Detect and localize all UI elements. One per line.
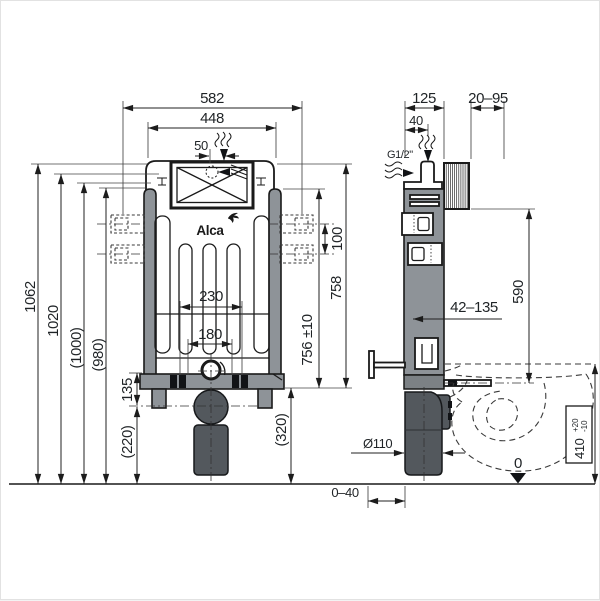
side-dimensions: 125 20–95 40 G1/2" 590 42–135 Ø110 410 +… [331,90,595,508]
water-waves-icon [215,132,231,147]
wc-frame-dimension-diagram: Alca [1,1,600,601]
foot-right [258,389,272,408]
dim-bracket-height: 590 [510,280,527,304]
water-inlet-arrow-icon [403,169,414,177]
dim-drain-diameter: Ø110 [363,436,392,451]
dim-bowl-tol-minus: -10 [580,420,589,432]
floor-level-label: 0 [514,455,522,472]
inlet-thread-label: G1/2" [387,149,413,161]
foot-left [152,389,166,408]
dim-overall-width: 582 [200,90,224,107]
service-box-upper [402,213,433,235]
dim-frame-depth: 125 [412,90,436,107]
anchor-rod [374,363,405,368]
dim-height-4: (980) [90,338,107,371]
technical-drawing-page: Alca [0,0,600,600]
dim-panel-height: 756 ±10 [299,314,316,365]
dim-bowl-tol-plus: +20 [571,418,580,432]
water-waves-icon [419,135,435,149]
frame-post-left [144,189,156,376]
dim-frame-height: 758 [328,276,345,300]
service-box-lower [408,243,442,265]
floor-level-marker-icon [510,473,526,484]
dim-outlet-center: (220) [119,425,136,458]
dim-bolt-spacing: 230 [199,288,223,305]
dim-base-to-outlet: 135 [119,378,136,402]
cistern-side-top [404,162,442,190]
dim-inner-spacing: 180 [198,326,222,343]
flush-opening [171,162,253,208]
drain-elbow-side [405,392,442,475]
grate-slot [410,195,439,199]
dim-outlet-side: (320) [273,413,290,446]
wall-bracket-options-left [97,215,147,263]
flush-bend-housing [415,338,438,369]
dim-wall-distance: 42–135 [450,299,498,316]
dim-bowl-height-box: 410 +20 -10 [566,406,592,463]
water-waves-icon [385,162,402,178]
water-inlet-arrow-icon [220,149,228,161]
dim-wall-range: 20–95 [468,90,508,107]
brand-logo: Alca [196,223,224,238]
dim-height-3: (1000) [68,327,85,368]
connector-clip [448,413,452,420]
dim-inlet-offset: 50 [194,138,208,153]
dim-bowl-height: 410 [572,438,587,459]
frame-post-right [269,189,281,376]
dim-bracket-spacing: 100 [329,227,346,251]
dim-cistern-width: 448 [200,110,224,127]
dim-foot-range: 0–40 [331,485,358,500]
dim-height-total: 1062 [22,281,39,313]
connector-clip [448,401,452,408]
base-side [404,375,444,389]
dim-inlet-depth: 40 [409,113,423,128]
water-inlet-arrow-icon [424,150,432,162]
grate-slot [410,202,439,206]
wall-bracket-side [444,163,469,209]
dim-height-2: 1020 [45,305,62,337]
